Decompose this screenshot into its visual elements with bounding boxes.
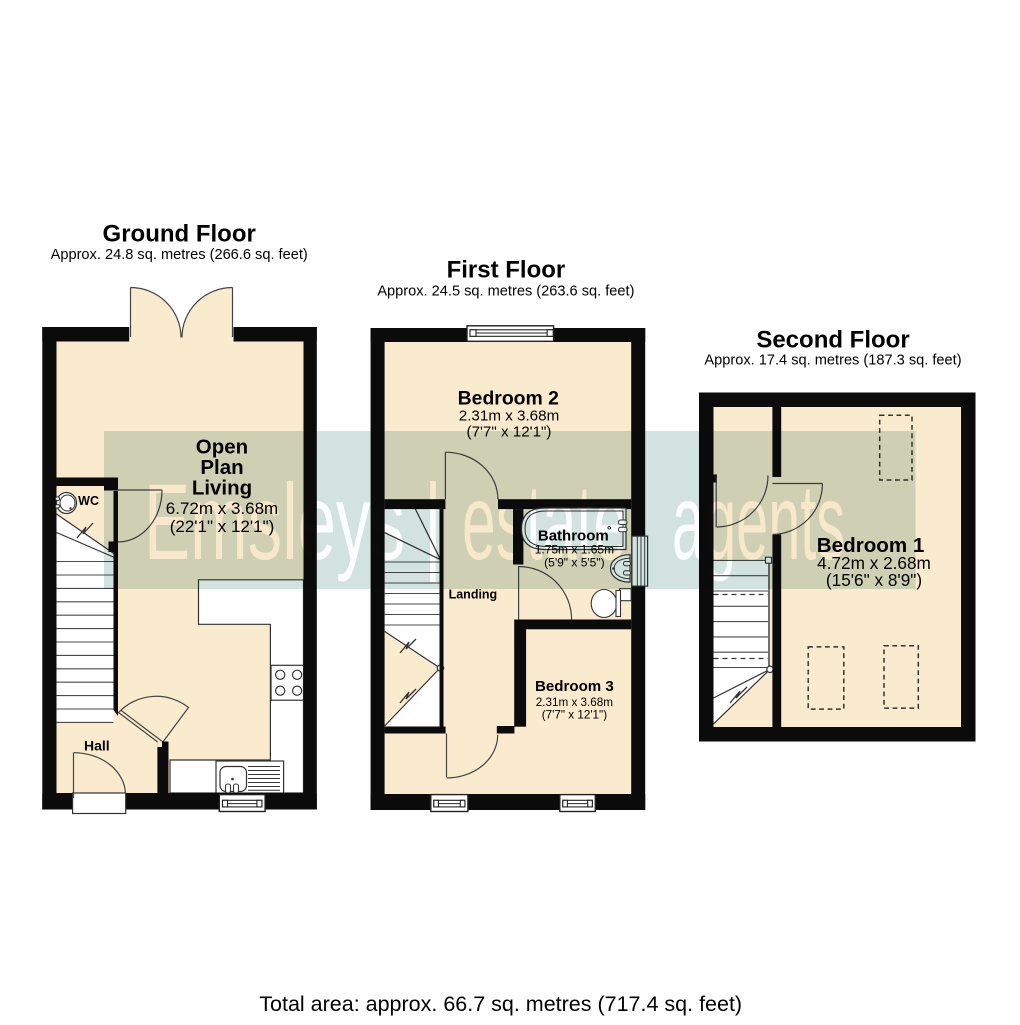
svg-text:Total area: approx. 66.7 sq. m: Total area: approx. 66.7 sq. metres (717… [259,992,742,1016]
svg-text:Approx. 24.5 sq. metres (263.6: Approx. 24.5 sq. metres (263.6 sq. feet) [377,284,634,300]
svg-text:Approx. 17.4 sq. metres (187.3: Approx. 17.4 sq. metres (187.3 sq. feet) [704,352,961,368]
svg-text:Approx. 24.8 sq. metres (266.6: Approx. 24.8 sq. metres (266.6 sq. feet) [51,247,308,263]
svg-text:agents: agents [672,463,845,583]
svg-text:First Floor: First Floor [447,257,566,284]
svg-text:Ground Floor: Ground Floor [103,221,256,248]
svg-text:2.31m x 3.68m: 2.31m x 3.68m [536,696,613,709]
svg-text:|: | [424,463,442,583]
svg-text:Second Floor: Second Floor [756,327,909,354]
svg-text:(7'7" x 12'1"): (7'7" x 12'1") [542,708,607,721]
svg-text:WC: WC [78,494,99,508]
svg-text:Hall: Hall [84,737,110,753]
svg-text:Landing: Landing [449,588,498,602]
svg-text:Bedroom 3: Bedroom 3 [535,678,614,695]
svg-text:2.31m x 3.68m: 2.31m x 3.68m [459,407,559,424]
svg-text:Emsleys: Emsleys [144,463,405,583]
svg-text:estate: estate [462,462,627,583]
svg-text:Bedroom 2: Bedroom 2 [458,387,559,409]
